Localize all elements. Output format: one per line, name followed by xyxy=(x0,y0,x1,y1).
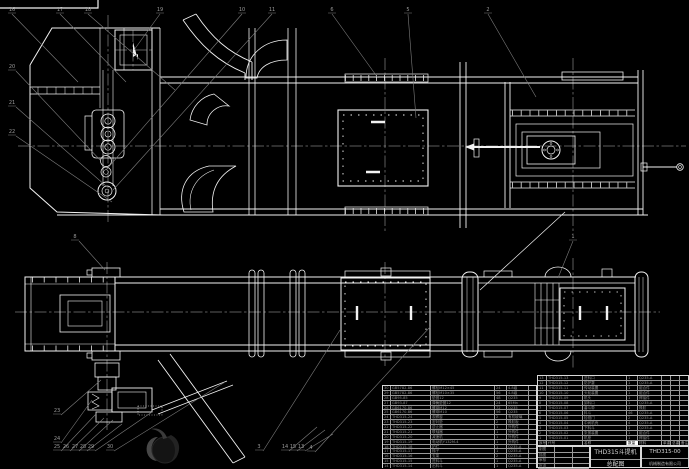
head-section xyxy=(30,14,287,215)
callout-number: 14 xyxy=(282,444,288,450)
takeup-bearing xyxy=(542,141,560,159)
callout-number: 22 xyxy=(9,129,15,135)
callout-number: 29 xyxy=(88,444,94,450)
callout-number: 23 xyxy=(54,408,60,414)
door-handle-slots xyxy=(366,122,385,172)
callout-number: 8 xyxy=(73,234,76,240)
head-plan xyxy=(25,268,120,360)
callout-number: 1 xyxy=(571,234,574,240)
buckets xyxy=(182,40,287,212)
callout-number: 27 xyxy=(72,444,78,450)
signature-grid: 制图描图审核批准 xyxy=(537,446,590,468)
callout-number: 3 xyxy=(257,444,260,450)
boot-door-plan xyxy=(560,288,625,340)
callout-number: 10 xyxy=(239,7,245,13)
callout-number: 4 xyxy=(309,445,312,451)
callout-number: 17 xyxy=(57,7,63,13)
front-view xyxy=(18,14,686,290)
takeup-screw xyxy=(465,139,540,157)
boot-section-front xyxy=(460,62,683,290)
parts-list-main: 13THD315-13进料口1Q235-A12THD315-12防护罩1Q235… xyxy=(537,375,689,446)
callout-number: 11 xyxy=(269,7,275,13)
centerlines xyxy=(18,15,686,234)
drawing-number-cell: THD315-00 机械制造有限公司 xyxy=(641,446,689,468)
inlet-dome xyxy=(545,267,571,361)
projection-line xyxy=(480,212,565,290)
bom-row: 批准 xyxy=(538,464,589,469)
inspection-door-plan xyxy=(341,268,430,360)
callout-number: 26 xyxy=(63,444,69,450)
parts-list-standard: 30GB5782-86螺栓M12×45244.8级29GB5782-86螺栓M1… xyxy=(382,385,537,468)
logo-watermark xyxy=(147,428,180,463)
callout-number: 28 xyxy=(80,444,86,450)
callout-number: 21 xyxy=(9,100,15,106)
tension-rod xyxy=(641,163,683,171)
callout-number: 19 xyxy=(157,7,163,13)
callout-number: 24 xyxy=(54,436,60,442)
middle-casing-plan xyxy=(115,268,636,360)
cad-canvas: { "colors": { "background": "#000000", "… xyxy=(0,0,689,468)
callout-number: 13 xyxy=(298,444,304,450)
middle-casing-front xyxy=(57,28,648,215)
callout-number: 2 xyxy=(486,7,489,13)
callout-number: 16 xyxy=(9,7,15,13)
takeup-guides xyxy=(535,283,559,345)
callout-number: 30 xyxy=(107,444,113,450)
callout-number: 6 xyxy=(330,7,333,13)
bom-row: 14THD315-14出料斗1Q235-A xyxy=(383,464,536,468)
head-top-box xyxy=(115,30,152,70)
callout-number: 25 xyxy=(54,444,60,450)
callout-number: 20 xyxy=(9,64,15,70)
drive-base xyxy=(96,412,122,422)
drive-sprockets xyxy=(85,110,124,200)
inspection-door-front xyxy=(338,110,428,186)
drawing-number: THD315-00 xyxy=(642,447,688,459)
support-brace xyxy=(152,381,233,414)
callout-number: 18 xyxy=(85,7,91,13)
drawing-title: THD315斗提机 xyxy=(591,447,640,460)
callout-number: 5 xyxy=(406,7,409,13)
callout-number: 15 xyxy=(290,444,296,450)
drawing-title-cell: THD315斗提机 总配图 xyxy=(590,446,641,468)
